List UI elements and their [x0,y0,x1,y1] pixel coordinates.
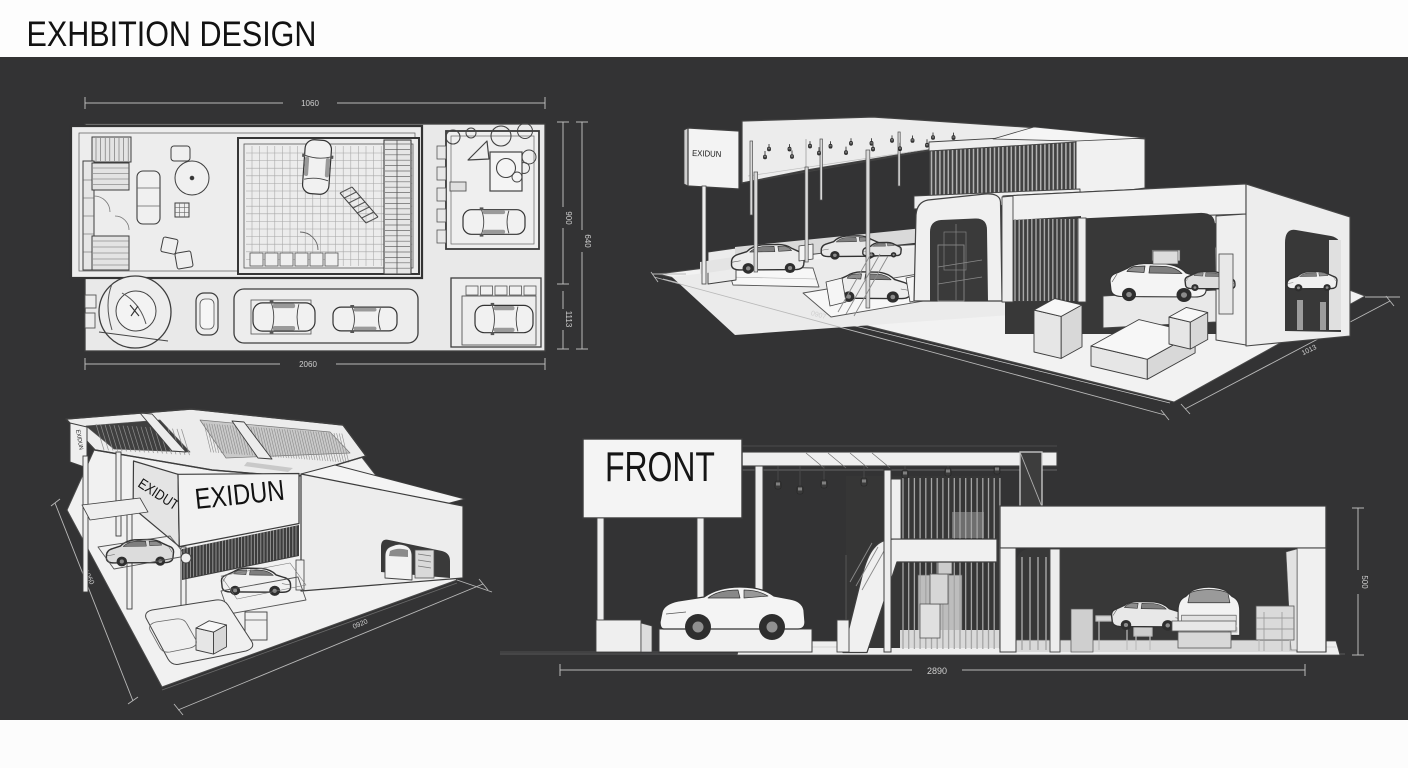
svg-text:FRONT: FRONT [605,443,715,490]
svg-text:900: 900 [564,211,573,225]
svg-text:2060: 2060 [299,360,317,369]
svg-text:EXIDUN: EXIDUN [692,149,722,159]
svg-text:1113: 1113 [564,311,573,328]
svg-text:EXHBITION DESIGN: EXHBITION DESIGN [27,15,317,55]
svg-text:500: 500 [1360,575,1369,589]
svg-text:1060: 1060 [301,99,319,108]
svg-text:2890: 2890 [927,666,947,676]
svg-text:640: 640 [583,234,592,248]
